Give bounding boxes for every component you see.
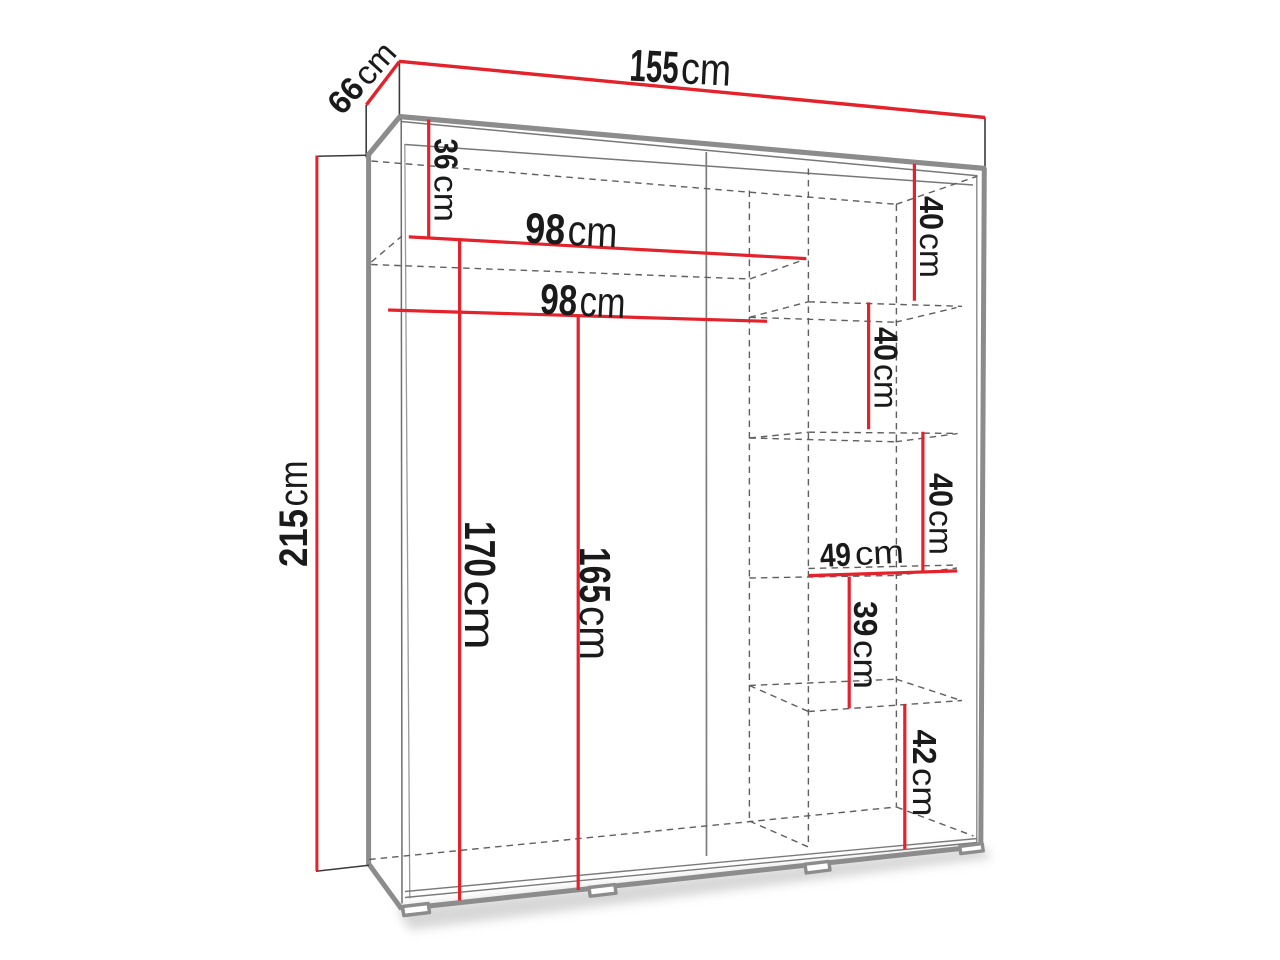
svg-text:36: 36 bbox=[428, 139, 465, 170]
svg-text:170: 170 bbox=[455, 521, 504, 577]
svg-text:155: 155 bbox=[628, 40, 680, 93]
svg-text:cm: cm bbox=[847, 640, 884, 689]
svg-text:40: 40 bbox=[913, 196, 950, 230]
svg-text:cm: cm bbox=[680, 42, 733, 96]
svg-text:39: 39 bbox=[847, 601, 884, 637]
svg-text:165: 165 bbox=[570, 547, 619, 603]
svg-text:40: 40 bbox=[923, 473, 960, 507]
svg-text:cm: cm bbox=[455, 580, 504, 650]
svg-text:215: 215 bbox=[272, 509, 316, 567]
svg-text:40: 40 bbox=[868, 327, 905, 361]
svg-text:cm: cm bbox=[854, 533, 905, 573]
svg-text:98: 98 bbox=[539, 276, 578, 326]
svg-text:cm: cm bbox=[906, 768, 943, 817]
svg-text:cm: cm bbox=[272, 461, 316, 507]
svg-text:cm: cm bbox=[923, 510, 960, 555]
svg-text:cm: cm bbox=[868, 364, 905, 409]
svg-text:cm: cm bbox=[566, 207, 618, 258]
svg-text:49: 49 bbox=[819, 535, 852, 574]
svg-text:cm: cm bbox=[570, 606, 619, 660]
svg-text:cm: cm bbox=[913, 233, 950, 278]
svg-text:42: 42 bbox=[906, 730, 943, 765]
svg-text:cm: cm bbox=[428, 175, 465, 222]
svg-text:cm: cm bbox=[578, 278, 626, 328]
svg-text:98: 98 bbox=[524, 205, 566, 255]
